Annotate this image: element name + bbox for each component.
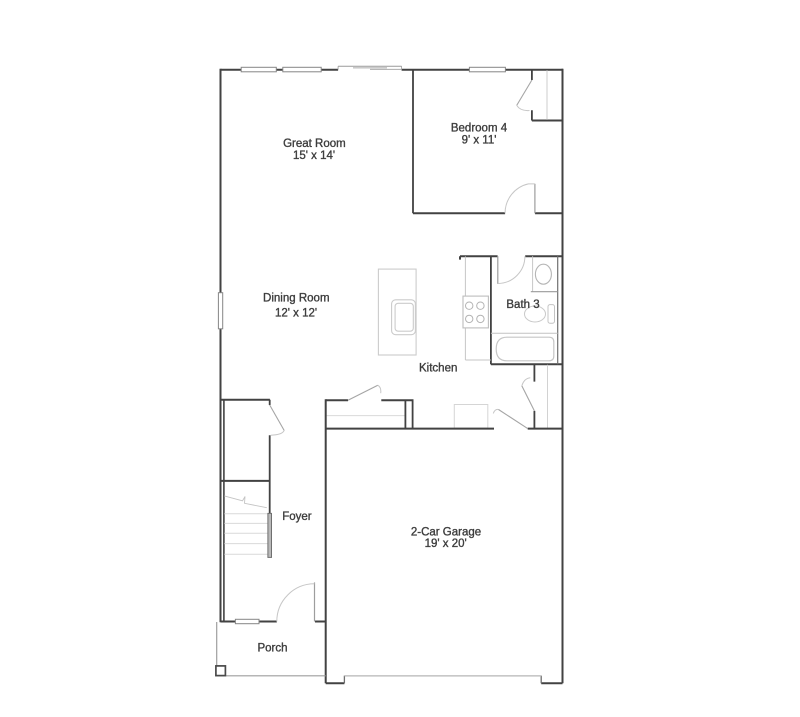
svg-text:Bath 3: Bath 3 [506, 299, 539, 311]
svg-text:Bedroom 4: Bedroom 4 [451, 123, 508, 135]
svg-text:12' x 12': 12' x 12' [275, 307, 317, 319]
svg-text:Great Room: Great Room [283, 138, 346, 150]
svg-text:Foyer: Foyer [282, 511, 312, 523]
svg-text:19' x 20': 19' x 20' [425, 538, 467, 550]
svg-text:Dining Room: Dining Room [263, 293, 329, 305]
svg-text:15' x 14': 15' x 14' [293, 150, 335, 162]
svg-text:Kitchen: Kitchen [419, 363, 457, 375]
svg-text:2-Car Garage: 2-Car Garage [411, 527, 481, 539]
svg-text:9' x 11': 9' x 11' [462, 135, 497, 147]
svg-text:Porch: Porch [257, 642, 287, 654]
